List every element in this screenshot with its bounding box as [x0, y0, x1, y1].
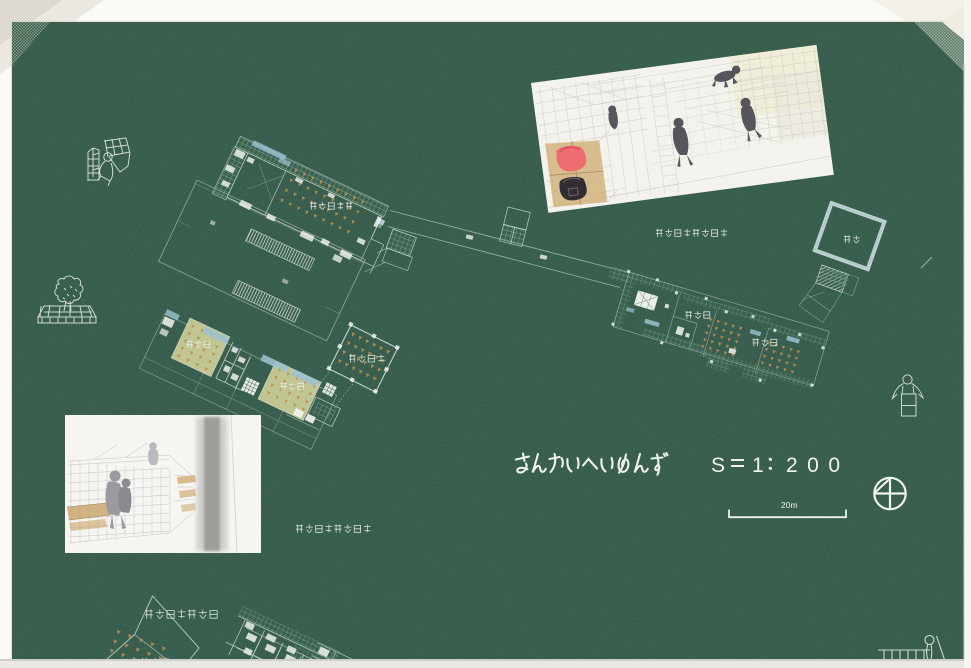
svg-text:20m: 20m — [781, 500, 798, 510]
svg-text:S: S — [711, 454, 725, 477]
svg-text:1: 1 — [752, 454, 764, 477]
svg-text:200: 200 — [786, 454, 850, 477]
